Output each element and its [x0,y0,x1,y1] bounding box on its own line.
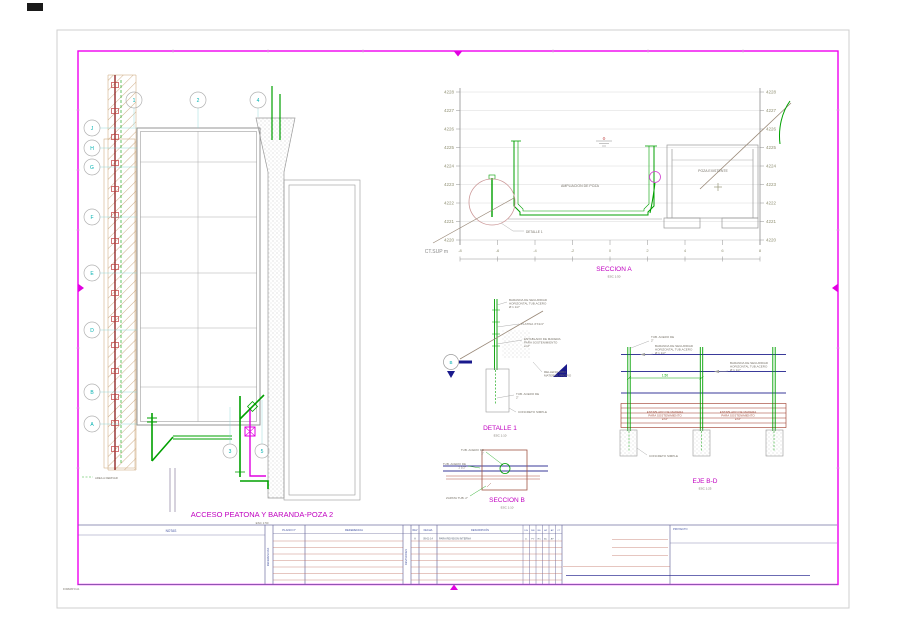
svg-text:1 1/2": 1 1/2" [458,466,466,470]
svg-text:RE: RE [538,530,542,532]
sheet-edge [57,30,849,608]
print-mark [27,3,43,11]
referencia-header: REFERENCIA [345,528,363,532]
fecha-value: 09-01-14 [423,538,433,541]
svg-text:MATERIAL PROPIO: MATERIAL PROPIO [544,374,572,378]
seccion-a-title: SECCION A [596,266,632,273]
revisiones-header: REVISIONES [404,549,408,565]
eje-bd-scale: ESC 1:25 [699,487,712,491]
svg-text:2": 2" [516,396,519,400]
svg-text:TUB. ACERO DE: TUB. ACERO DE [651,335,674,339]
svg-text:4227: 4227 [444,108,455,113]
fecha-header: FECHA [424,528,433,532]
svg-text:4228: 4228 [444,90,455,95]
svg-text:e=2": e=2" [662,417,668,421]
col-bubble-1: 1 [133,98,136,104]
svg-text:4228: 4228 [766,90,777,95]
referencias-header: REFERENCIAS [266,548,270,567]
svg-text:AC: AC [544,538,547,541]
axis-title: CT.SUP m [425,249,448,255]
svg-text:e=2": e=2" [735,417,741,421]
detalle-1-title: DETALLE 1 [483,425,517,432]
svg-text:Ø 1 1/2": Ø 1 1/2" [655,351,666,355]
col-bubble-4: 4 [257,98,260,104]
plan-title: ACCESO PEATONA Y BARANDA-POZA 2 [191,510,333,519]
svg-text:4225: 4225 [766,145,777,150]
row-bubble-d: D [90,328,94,334]
notas-header: NOTAS [166,529,177,533]
plano-header: PLANO N° [282,528,295,532]
proyecto-header: PROYECTO [673,527,688,531]
area-label: AREA A DERIVAR [95,476,118,480]
pipe-bubble-3: 3 [229,449,232,455]
svg-text:4224: 4224 [444,164,455,169]
svg-text:PLATINA 4"X1/4": PLATINA 4"X1/4" [521,322,544,326]
svg-text:4227: 4227 [766,108,777,113]
sheet-borders: FORMATO A1 [27,3,849,608]
seccion-a-scale: ESC 1:50 [608,275,621,279]
svg-text:2": 2" [651,339,654,343]
col-bubble-2: 2 [197,98,200,104]
poza-existente-label: POZA EXISTENTE [698,169,728,173]
svg-text:TUB. ACERO DE: TUB. ACERO DE [516,392,539,396]
row-bubble-g: G [90,165,94,171]
svg-text:4226: 4226 [766,127,777,132]
svg-text:Ø 1 1/2": Ø 1 1/2" [730,368,741,372]
row-bubble-h: H [90,146,94,152]
rev-header: REV [413,529,418,532]
descripcion-value: PARA REVISION INTERNA [439,537,471,541]
svg-text:4224: 4224 [766,164,777,169]
seccion-b-title: SECCION B [489,497,525,504]
svg-text:4221: 4221 [766,219,777,224]
marker-letter: B [449,360,452,365]
svg-text:4223: 4223 [766,182,777,187]
detalle-ref-label: DETALLE 1 [526,230,543,234]
svg-text:4222: 4222 [444,201,455,206]
svg-text:DIB: DIB [531,530,535,532]
svg-text:4226: 4226 [444,127,455,132]
svg-text:4222: 4222 [766,201,777,206]
format-label: FORMATO A1 [63,587,80,591]
svg-text:CONCRETO SIMPLE: CONCRETO SIMPLE [518,410,547,414]
svg-text:4223: 4223 [444,182,455,187]
plan-scale: ESC 1:50 [256,521,269,525]
cad-drawing: FORMATO A1 [0,0,905,640]
svg-text:DIS: DIS [524,530,528,532]
svg-text:2": 2" [481,452,484,456]
detalle-1-scale: ESC 1:10 [494,434,507,438]
svg-text:4220: 4220 [444,238,455,243]
svg-text:e=2": e=2" [524,344,530,348]
svg-text:4225: 4225 [444,145,455,150]
drawing-sheet-page: FORMATO A1 [0,0,905,640]
svg-text:4220: 4220 [766,238,777,243]
svg-text:CONCRETO SIMPLE: CONCRETO SIMPLE [649,454,678,458]
seccion-b-scale: ESC 1:10 [501,506,514,510]
rev-value: A [414,537,416,541]
svg-text:RC: RC [538,539,542,541]
svg-text:ZAPATA TUB. 2": ZAPATA TUB. 2" [446,496,468,500]
svg-text:Ø 1 1/2": Ø 1 1/2" [509,305,520,309]
dim-value: 1.50 [662,374,668,378]
pipe-bubble-5: 5 [261,449,264,455]
svg-text:4221: 4221 [444,219,455,224]
eje-bd-title: EJE B-D [693,478,718,485]
ampliacion-label: AMPLIACION DE POZA [561,184,600,188]
row-bubble-f: F [90,215,93,221]
